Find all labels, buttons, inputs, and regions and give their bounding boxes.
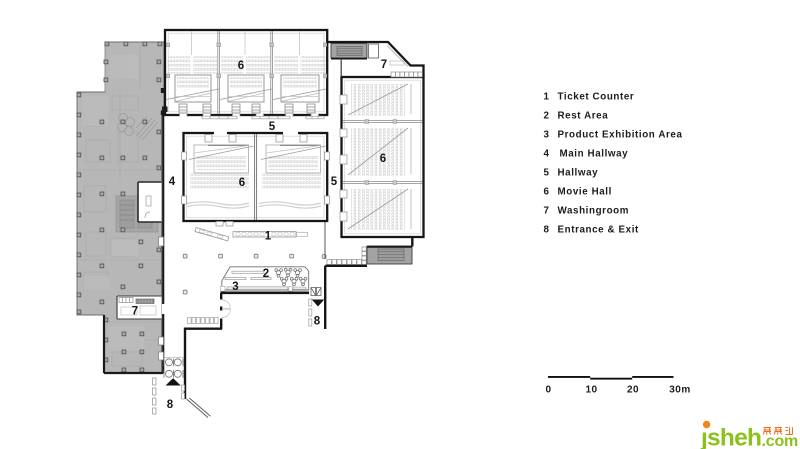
svg-text:Hallway: Hallway [558, 168, 599, 179]
svg-text:0: 0 [545, 385, 551, 396]
svg-text:6: 6 [238, 60, 244, 72]
svg-text:3: 3 [544, 130, 550, 141]
svg-text:Entrance & Exit: Entrance & Exit [558, 225, 640, 236]
svg-text:7: 7 [132, 306, 138, 318]
svg-text:Rest Area: Rest Area [558, 111, 609, 122]
svg-text:7: 7 [544, 206, 550, 217]
svg-text:2: 2 [263, 268, 269, 280]
svg-text:1: 1 [265, 231, 272, 243]
svg-text:2: 2 [544, 111, 550, 122]
svg-text:5: 5 [269, 121, 276, 133]
svg-text:5: 5 [544, 168, 550, 179]
svg-text:6: 6 [544, 187, 550, 198]
svg-text:1: 1 [544, 92, 550, 103]
svg-text:.com: .com [762, 433, 799, 449]
svg-text:20: 20 [627, 385, 639, 396]
svg-text:4: 4 [544, 149, 550, 160]
svg-text:4: 4 [169, 176, 176, 188]
svg-text:30m: 30m [669, 385, 691, 396]
svg-text:Washingroom: Washingroom [558, 206, 630, 217]
svg-text:6: 6 [380, 153, 386, 165]
svg-text:jsheh: jsheh [700, 425, 761, 449]
svg-text:Ticket Counter: Ticket Counter [558, 92, 635, 103]
svg-text:Main Hallway: Main Hallway [560, 149, 629, 160]
svg-text:3: 3 [232, 281, 238, 293]
svg-text:8: 8 [544, 225, 550, 236]
svg-text:8: 8 [167, 399, 174, 411]
svg-text:8: 8 [314, 316, 321, 328]
svg-text:6: 6 [239, 177, 245, 189]
svg-text:Product Exhibition Area: Product Exhibition Area [558, 130, 683, 141]
svg-text:10: 10 [585, 385, 597, 396]
svg-text:5: 5 [331, 176, 338, 188]
svg-text:7: 7 [381, 59, 387, 71]
svg-text:Movie Hall: Movie Hall [558, 187, 612, 198]
